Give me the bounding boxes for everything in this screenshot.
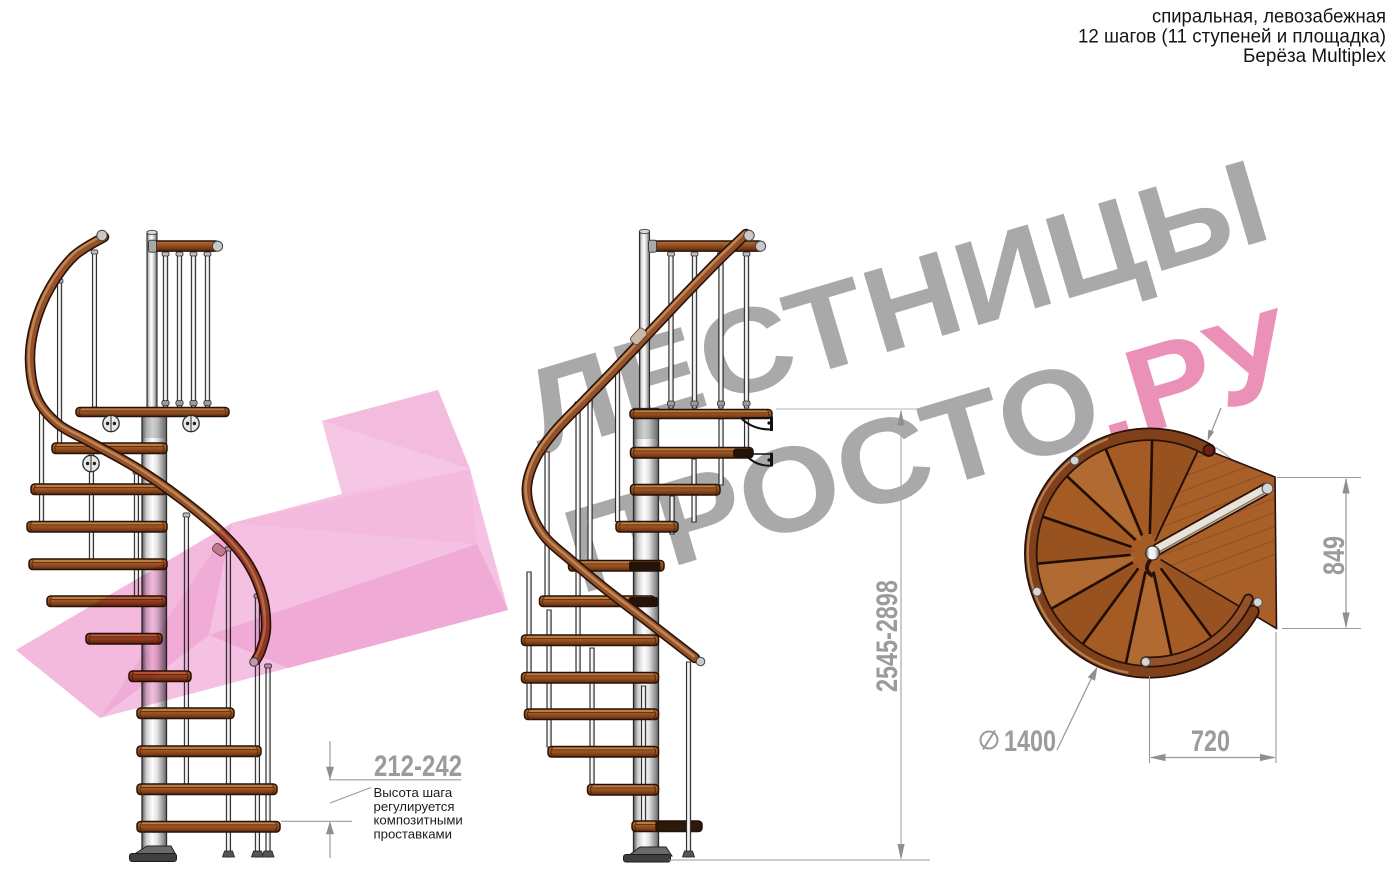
svg-text:Высота шага: Высота шага [374,785,453,800]
svg-text:2545-2898: 2545-2898 [870,580,903,692]
svg-text:композитными: композитными [374,813,463,828]
svg-text:212-242: 212-242 [374,748,462,782]
svg-text:регулируется: регулируется [374,799,455,814]
svg-text:проставками: проставками [374,826,452,841]
svg-text:12 шагов (11 ступеней и площад: 12 шагов (11 ступеней и площадка) [1078,25,1386,47]
svg-text:Берёза Multiplex: Берёза Multiplex [1243,45,1386,67]
svg-text:720: 720 [1191,724,1230,757]
svg-text:спиральная, левозабежная: спиральная, левозабежная [1152,6,1386,28]
svg-text:849: 849 [1317,536,1350,575]
svg-text:1400: 1400 [1004,724,1056,757]
